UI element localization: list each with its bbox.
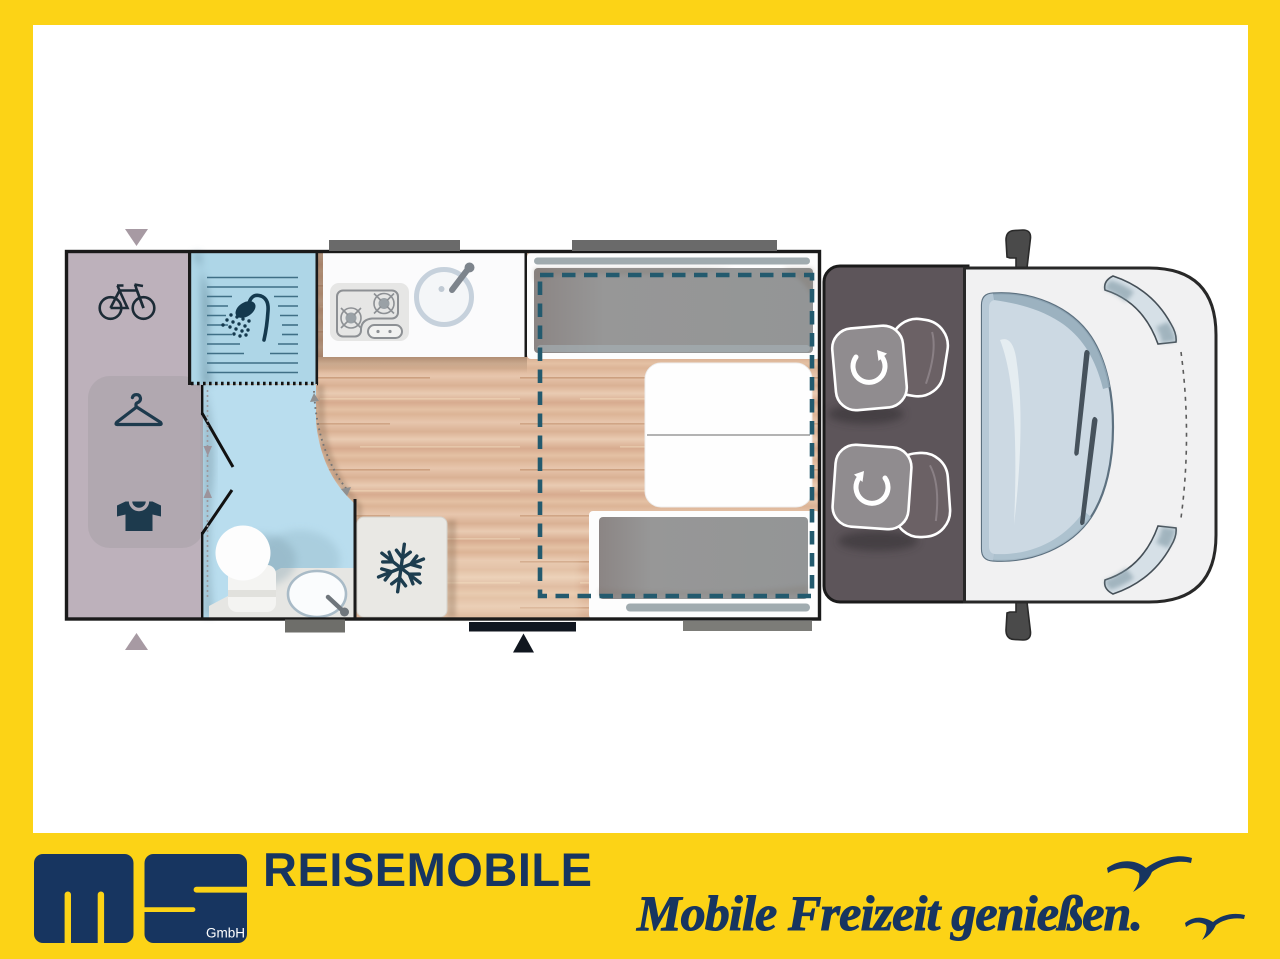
svg-text:GmbH: GmbH [206, 926, 245, 941]
svg-text:Mobile Freizeit genießen.: Mobile Freizeit genießen. [636, 885, 1143, 941]
svg-text:REISEMOBILE: REISEMOBILE [263, 843, 592, 896]
